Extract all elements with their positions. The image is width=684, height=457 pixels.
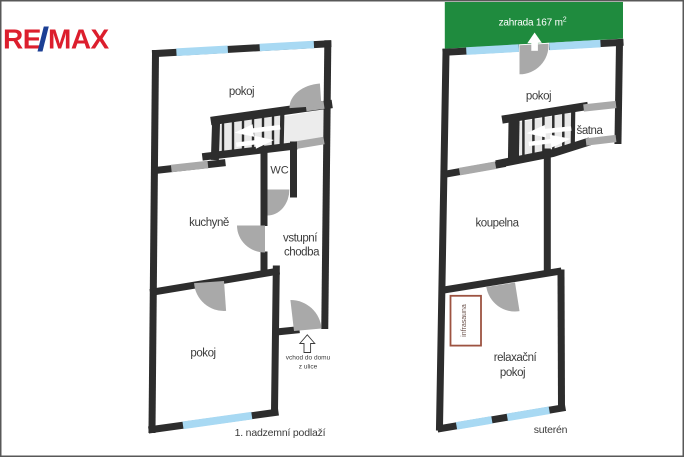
svg-text:suterén: suterén xyxy=(534,424,568,436)
svg-text:z ulice: z ulice xyxy=(299,364,318,371)
svg-text:MAX: MAX xyxy=(48,24,110,55)
svg-text:RE: RE xyxy=(3,24,41,55)
svg-text:koupelna: koupelna xyxy=(475,218,519,230)
svg-text:pokoj: pokoj xyxy=(500,367,525,379)
svg-text:infrasauna: infrasauna xyxy=(461,304,468,337)
svg-text:pokoj: pokoj xyxy=(526,91,551,103)
svg-text:1. nadzemní podlaží: 1. nadzemní podlaží xyxy=(235,427,326,439)
svg-text:kuchyně: kuchyně xyxy=(189,217,229,229)
svg-text:WC: WC xyxy=(270,165,288,177)
svg-text:relaxační: relaxační xyxy=(494,352,538,364)
svg-text:vstupní: vstupní xyxy=(283,233,318,245)
svg-text:šatna: šatna xyxy=(577,125,604,137)
svg-text:pokoj: pokoj xyxy=(190,348,215,360)
svg-text:vchod do domu: vchod do domu xyxy=(286,355,331,362)
svg-text:chodba: chodba xyxy=(284,247,320,259)
svg-text:zahrada 167 m2: zahrada 167 m2 xyxy=(499,17,567,29)
svg-text:pokoj: pokoj xyxy=(229,86,254,98)
